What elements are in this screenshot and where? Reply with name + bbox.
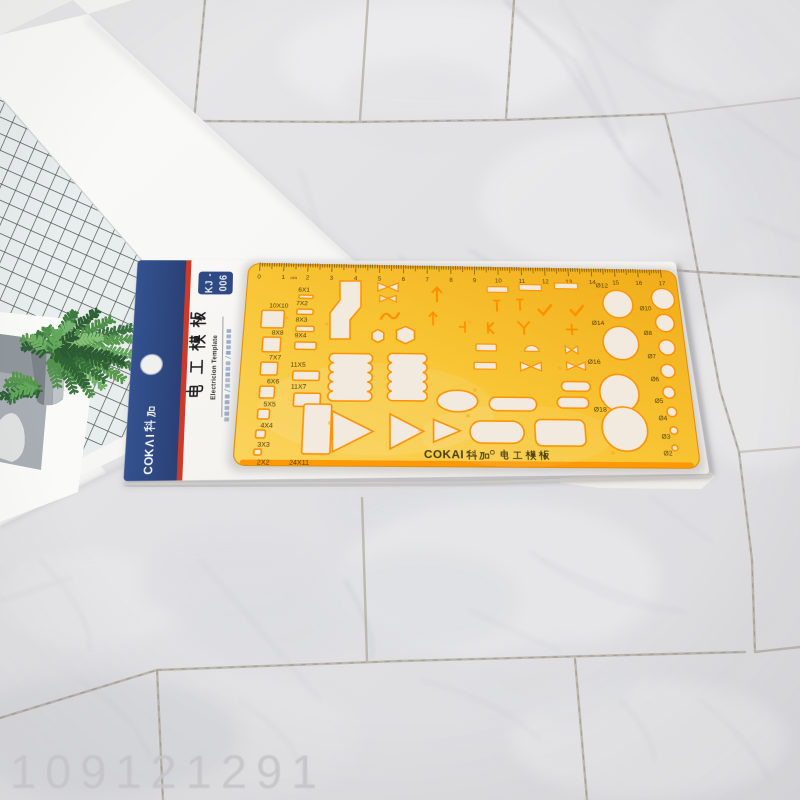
svg-text:Ø7: Ø7 xyxy=(647,354,656,360)
svg-text:Ø14: Ø14 xyxy=(591,320,605,327)
svg-text:16: 16 xyxy=(635,281,642,287)
svg-text:3X3: 3X3 xyxy=(257,442,271,449)
svg-text:cm: cm xyxy=(290,275,297,280)
svg-text:6: 6 xyxy=(402,277,406,283)
svg-text:Ø16: Ø16 xyxy=(587,359,601,366)
svg-text:5X5: 5X5 xyxy=(263,402,277,409)
svg-text:006: 006 xyxy=(217,275,230,292)
svg-text:Ø12: Ø12 xyxy=(595,283,609,290)
svg-text:6X6: 6X6 xyxy=(267,379,280,386)
svg-text:8: 8 xyxy=(449,278,453,284)
svg-text:11X5: 11X5 xyxy=(290,362,307,369)
svg-text:Ø2: Ø2 xyxy=(663,451,673,458)
svg-text:9X4: 9X4 xyxy=(294,333,307,339)
svg-text:1: 1 xyxy=(281,275,285,281)
svg-text:17: 17 xyxy=(658,281,665,287)
svg-text:CO: CO xyxy=(142,456,156,475)
svg-text:7: 7 xyxy=(425,277,429,283)
svg-text:10: 10 xyxy=(495,279,502,285)
svg-text:2X2: 2X2 xyxy=(257,460,270,467)
svg-text:15: 15 xyxy=(612,281,619,287)
svg-text:4X4: 4X4 xyxy=(260,423,274,430)
svg-text:7X7: 7X7 xyxy=(269,355,281,362)
svg-text:6X1: 6X1 xyxy=(298,287,310,293)
svg-text:7X2: 7X2 xyxy=(296,301,308,307)
svg-text:Ø3: Ø3 xyxy=(661,434,671,441)
svg-text:I: I xyxy=(144,434,157,438)
svg-text:Ø10: Ø10 xyxy=(639,306,651,312)
svg-text:KJ -: KJ - xyxy=(203,273,216,294)
svg-text:Ø6: Ø6 xyxy=(650,377,659,383)
svg-text:Λ: Λ xyxy=(144,439,157,447)
svg-text:3: 3 xyxy=(330,276,334,282)
svg-text:12: 12 xyxy=(542,279,549,285)
svg-text:Ø4: Ø4 xyxy=(658,416,668,423)
svg-text:Ø8: Ø8 xyxy=(643,331,652,337)
svg-text:0: 0 xyxy=(257,275,261,281)
svg-text:24X11: 24X11 xyxy=(289,460,309,467)
svg-text:5: 5 xyxy=(378,277,382,283)
svg-text:K: K xyxy=(143,448,157,457)
svg-text:2: 2 xyxy=(306,275,310,281)
svg-text:Ø5: Ø5 xyxy=(654,399,663,406)
svg-text:Ø18: Ø18 xyxy=(594,406,608,414)
svg-text:8X3: 8X3 xyxy=(295,317,308,323)
svg-text:10X10: 10X10 xyxy=(269,304,289,310)
svg-text:11X7: 11X7 xyxy=(291,385,307,392)
svg-text:9: 9 xyxy=(473,278,477,284)
svg-text:8X8: 8X8 xyxy=(271,330,284,336)
svg-text:COKAI: COKAI xyxy=(424,449,464,462)
